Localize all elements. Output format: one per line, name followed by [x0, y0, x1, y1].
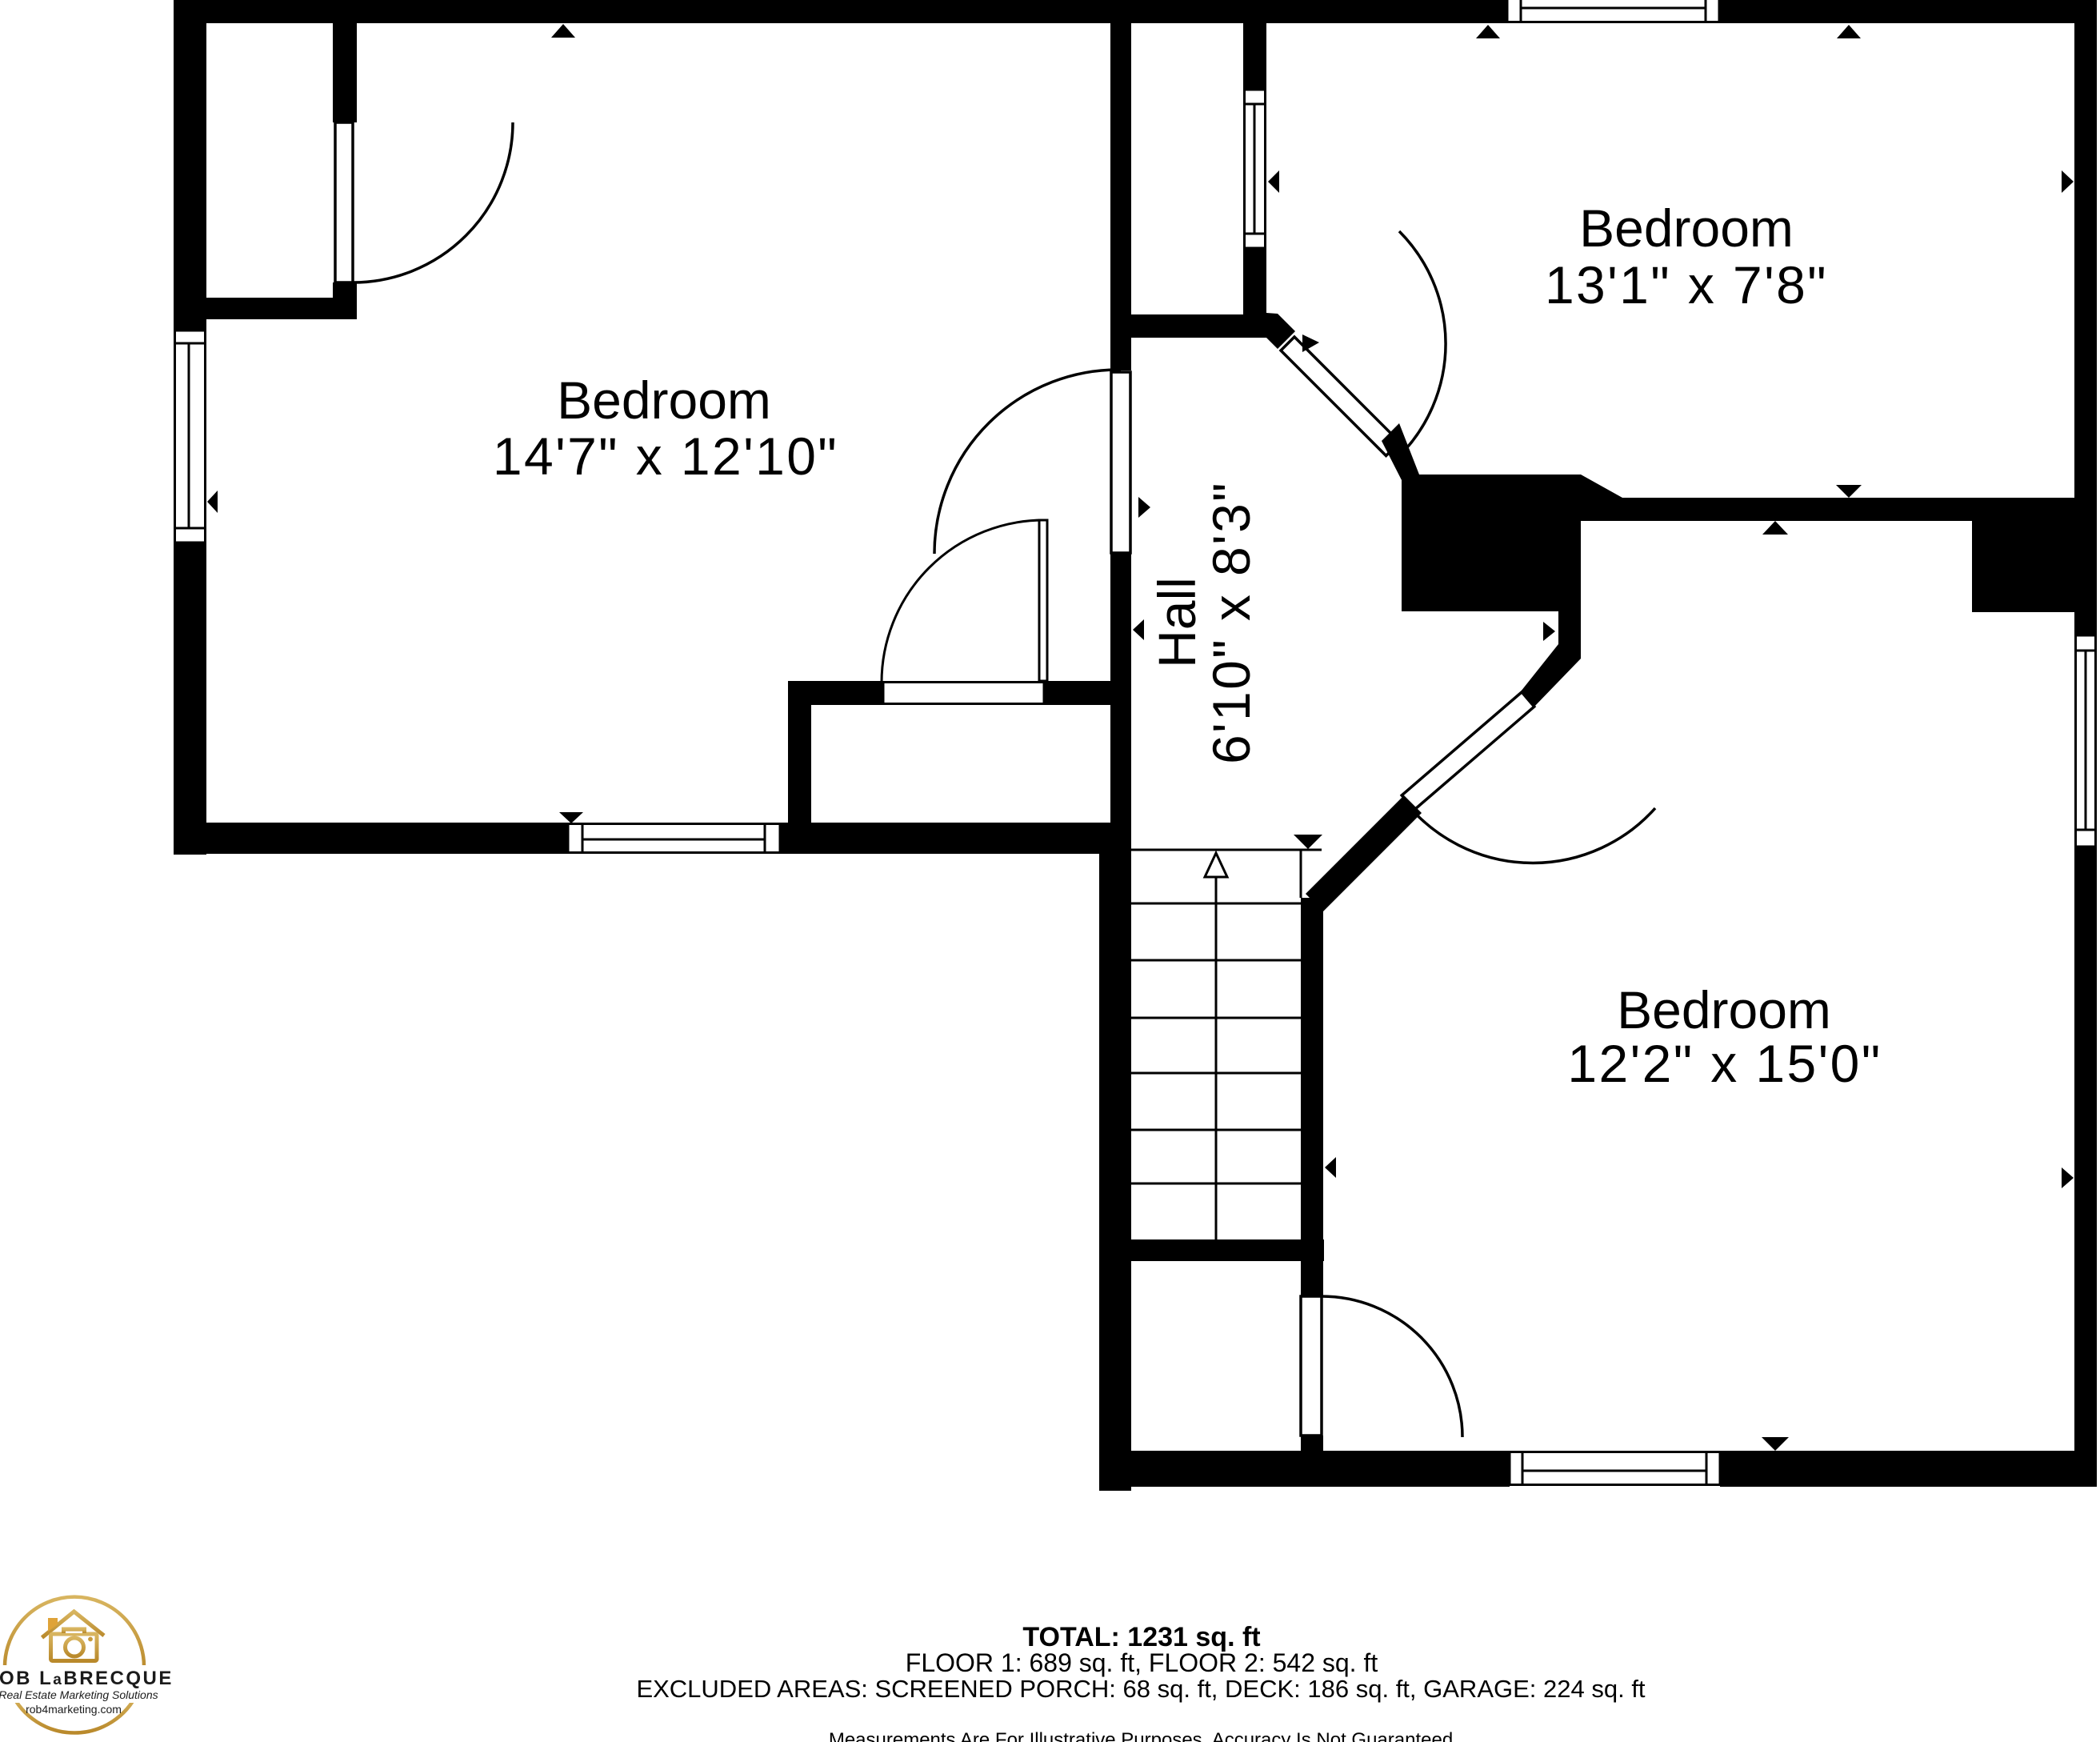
svg-text:6'10" x 8'3": 6'10" x 8'3" [1202, 481, 1261, 764]
svg-text:12'2" x 15'0": 12'2" x 15'0" [1567, 1034, 1882, 1093]
svg-text:Bedroom: Bedroom [557, 370, 771, 430]
svg-text:Bedroom: Bedroom [1579, 198, 1794, 258]
svg-text:14'7" x 12'10": 14'7" x 12'10" [493, 426, 838, 486]
svg-text:rob4marketing.com: rob4marketing.com [26, 1703, 122, 1716]
svg-text:FLOOR 1: 689 sq. ft, FLOOR 2:: FLOOR 1: 689 sq. ft, FLOOR 2: 542 sq. ft [906, 1648, 1378, 1677]
svg-text:EXCLUDED AREAS: SCREENED PORCH: EXCLUDED AREAS: SCREENED PORCH: 68 sq. f… [636, 1675, 1645, 1703]
svg-text:Real Estate Marketing Solution: Real Estate Marketing Solutions [0, 1688, 158, 1701]
svg-text:13'1" x 7'8": 13'1" x 7'8" [1545, 255, 1828, 314]
svg-text:Measurements Are For Illustrat: Measurements Are For Illustrative Purpos… [829, 1729, 1453, 1742]
svg-text:Bedroom: Bedroom [1617, 980, 1831, 1039]
svg-text:ROB LaBRECQUE: ROB LaBRECQUE [0, 1668, 174, 1689]
svg-text:Hall: Hall [1147, 577, 1206, 668]
